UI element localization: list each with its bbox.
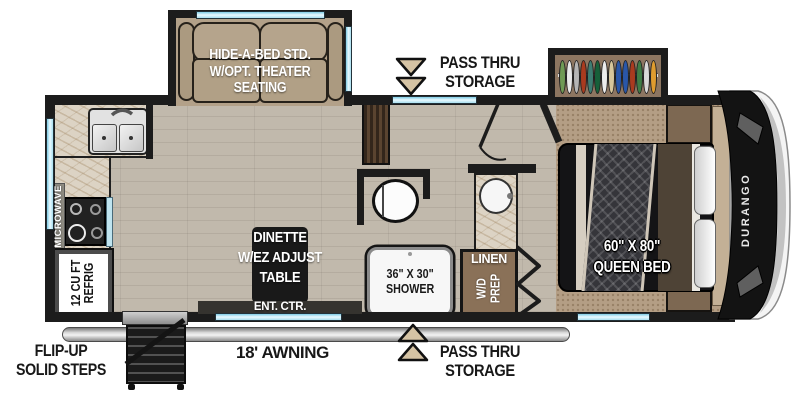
pass-thru-top-line2: STORAGE <box>432 73 528 92</box>
bath-wall-top <box>363 169 430 177</box>
vanity-faucet <box>507 193 513 199</box>
queen-bed-label: 60" X 80" QUEEN BED <box>556 236 708 278</box>
clothing-item <box>566 60 573 94</box>
clothing-item <box>587 60 594 94</box>
toilet <box>372 179 419 223</box>
flip-up-line2: SOLID STEPS <box>9 361 114 380</box>
clothing-item <box>594 60 601 94</box>
brand-logo-box: DURANGO <box>692 140 800 280</box>
refrig-label-box: 12 CU FT REFRIG <box>30 252 137 314</box>
shower-line1: 36" X 30" <box>386 267 434 282</box>
pass-thru-bottom-line1: PASS THRU <box>432 342 528 361</box>
microwave-label-box: MICROWAVE <box>22 182 94 250</box>
shower-drain <box>408 252 412 256</box>
dinette-line3: TABLE <box>209 268 350 288</box>
clothing-item <box>608 60 615 94</box>
brand-logo: DURANGO <box>740 173 752 247</box>
slideout-window-top <box>196 11 325 19</box>
clothing-item <box>559 60 566 94</box>
clothing-item <box>601 60 608 94</box>
wardrobe-clothes <box>556 57 660 97</box>
clothing-item <box>580 60 587 94</box>
flip-up-steps-label: FLIP-UP SOLID STEPS <box>0 342 122 379</box>
hide-a-bed-line3: SEATING <box>188 80 332 97</box>
awning-label: 18' AWNING <box>225 343 340 363</box>
slideout-wall-left <box>168 10 176 106</box>
clothing-item <box>636 60 643 94</box>
wall-counter-stub <box>146 103 153 159</box>
shower-label: 36" X 30" SHOWER <box>382 267 438 297</box>
dinette-line2: W/EZ ADJUST <box>209 248 350 268</box>
microwave-label: MICROWAVE <box>52 185 63 248</box>
hide-a-bed-label: HIDE-A-BED STD. W/OPT. THEATER SEATING <box>176 47 344 97</box>
hide-a-bed-line1: HIDE-A-BED STD. <box>188 47 332 64</box>
clothing-item <box>573 60 580 94</box>
queen-bed-line2: QUEEN BED <box>567 257 698 278</box>
pass-thru-top-line1: PASS THRU <box>432 54 528 73</box>
toilet-seat-line <box>382 185 384 217</box>
floorplan-diagram: MICROWAVE 12 CU FT REFRIG HIDE-A-BED STD… <box>0 0 800 400</box>
clothing-item <box>629 60 636 94</box>
bath-wall-stub <box>423 169 430 199</box>
arrow-down-icons <box>394 56 428 98</box>
shower-line2: SHOWER <box>386 282 434 297</box>
window-dinette <box>215 313 342 321</box>
sink-drain <box>102 136 106 140</box>
sink-drain <box>129 136 133 140</box>
bath-wall-left <box>357 169 364 225</box>
wd-prep-line2: PREP <box>489 273 503 302</box>
slideout-window-right <box>345 26 352 92</box>
clothing-item <box>615 60 622 94</box>
ent-ctr-label: ENT. CTR. <box>198 301 362 314</box>
entry-steps <box>126 325 186 384</box>
queen-bed-line1: 60" X 80" <box>567 236 698 257</box>
wd-prep-line1: W/D <box>475 273 489 302</box>
pantry-cabinet <box>362 103 390 165</box>
backsplash-tile <box>106 197 113 247</box>
dinette-label: DINETTE W/EZ ADJUST TABLE <box>198 228 362 288</box>
step-foot <box>177 384 184 390</box>
wardrobe-wall-top <box>548 48 668 55</box>
flip-up-line1: FLIP-UP <box>9 342 114 361</box>
vanity-wall-top <box>468 164 536 173</box>
step-foot <box>128 384 135 390</box>
clothing-item <box>622 60 629 94</box>
pass-thru-bottom-line2: STORAGE <box>432 361 528 380</box>
refrig-label-line2: REFRIG <box>84 260 97 307</box>
wd-prep-label-box: W/D PREP <box>432 262 546 314</box>
window-bedroom <box>577 313 650 321</box>
clothing-item <box>650 60 657 94</box>
dinette-line1: DINETTE <box>209 228 350 248</box>
hide-a-bed-line2: W/OPT. THEATER <box>188 64 332 81</box>
clothing-item <box>643 60 650 94</box>
pass-thru-storage-bottom-label: PASS THRU STORAGE <box>424 342 536 380</box>
pass-thru-storage-top-label: PASS THRU STORAGE <box>424 54 536 91</box>
